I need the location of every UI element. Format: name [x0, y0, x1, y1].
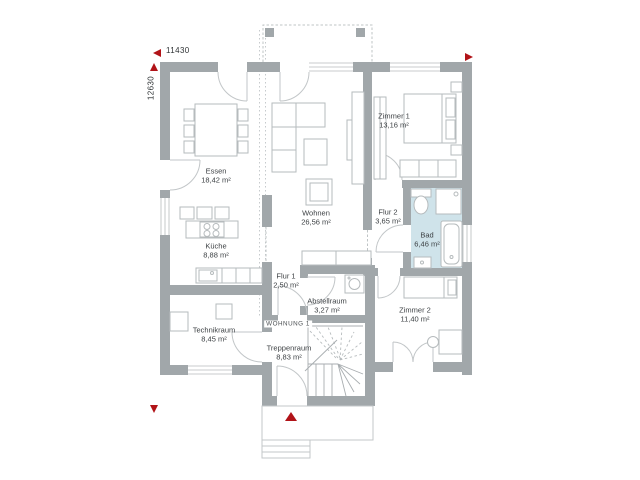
room-name: Essen	[201, 167, 231, 176]
window-left-kitchen	[160, 198, 170, 235]
apartment-unit-label: WOHNUNG 1	[264, 321, 312, 328]
room-name: Flur 2	[375, 208, 400, 217]
terrace-door-dining-left	[170, 160, 200, 190]
entrance-porch	[262, 406, 373, 458]
dimension-height-label: 12630	[147, 76, 156, 100]
door-stair-technikraum	[232, 332, 262, 362]
room-area: 3,27 m²	[307, 306, 347, 315]
room-area: 6,46 m²	[414, 240, 439, 249]
terrace-door-living-top	[280, 72, 309, 101]
armchair	[306, 179, 332, 205]
terrace-door-dining-top	[218, 72, 247, 101]
room-name: Treppenraum	[267, 344, 312, 353]
kitchen-counter-sink	[196, 268, 262, 283]
shower	[436, 189, 461, 214]
staircase	[305, 326, 363, 396]
window-bottom-technik	[188, 365, 232, 375]
dining-table	[184, 104, 248, 156]
door-flur2-zimmer2	[378, 276, 400, 298]
balcony-overhang-outline	[263, 25, 372, 62]
dim-arrow-left-icon	[153, 49, 161, 57]
room-area: 18,42 m²	[201, 176, 231, 185]
room-name: Technikraum	[193, 326, 236, 335]
room-name: Zimmer 2	[399, 306, 431, 315]
window-top-living	[309, 62, 353, 72]
window-right-bath	[462, 225, 472, 262]
room-area: 3,65 m²	[375, 217, 400, 226]
bath-sink	[414, 257, 431, 268]
coffee-table	[304, 139, 327, 165]
dresser-zimmer1	[400, 160, 456, 177]
kitchen-cabinets	[180, 207, 238, 238]
room-name: Flur 1	[273, 272, 298, 281]
room-label-bad: Bad 6,46 m²	[414, 231, 439, 250]
dim-arrow-right-icon	[465, 53, 473, 61]
french-doors-zimmer2	[393, 342, 433, 362]
floorplan-page: 11430 12630 Essen 18,42 m² Küche 8,88 m²…	[0, 0, 640, 480]
dim-arrow-up-icon	[150, 63, 158, 71]
room-area: 8,83 m²	[267, 353, 312, 362]
room-label-treppenraum: Treppenraum 8,83 m²	[267, 344, 312, 363]
room-area: 13,16 m²	[378, 121, 410, 130]
floorplan-canvas	[0, 0, 640, 480]
room-label-technikraum: Technikraum 8,45 m²	[193, 326, 236, 345]
room-label-essen: Essen 18,42 m²	[201, 167, 231, 186]
room-label-wohnen: Wohnen 26,56 m²	[301, 209, 331, 228]
room-area: 8,88 m²	[203, 251, 228, 260]
room-name: Bad	[414, 231, 439, 240]
room-name: Küche	[203, 242, 228, 251]
room-label-flur1: Flur 1 2,50 m²	[273, 272, 298, 291]
entrance-marker-icon	[285, 412, 297, 421]
bathtub	[441, 221, 462, 267]
room-label-flur2: Flur 2 3,65 m²	[375, 208, 400, 227]
room-name: Abstellraum	[307, 297, 347, 306]
dimension-width-label: 11430	[166, 46, 190, 55]
bed-zimmer1	[404, 82, 462, 155]
room-area: 8,45 m²	[193, 335, 236, 344]
room-label-zimmer2: Zimmer 2 11,40 m²	[399, 306, 431, 325]
house-entrance-door	[277, 366, 307, 396]
bed-zimmer2	[404, 277, 457, 298]
room-label-zimmer1: Zimmer 1 13,16 m²	[378, 112, 410, 131]
room-area: 11,40 m²	[399, 315, 431, 324]
room-label-kueche: Küche 8,88 m²	[203, 242, 228, 261]
door-flur2-bad	[376, 225, 403, 252]
room-area: 2,50 m²	[273, 281, 298, 290]
living-bench	[302, 251, 371, 265]
room-name: Zimmer 1	[378, 112, 410, 121]
window-top-bedroom1	[390, 62, 440, 72]
tv-sideboard	[347, 92, 364, 184]
room-area: 26,56 m²	[301, 218, 331, 227]
washing-machine	[345, 275, 364, 293]
room-label-abstellraum: Abstellraum 3,27 m²	[307, 297, 347, 316]
room-name: Wohnen	[301, 209, 331, 218]
wardrobe-zimmer1	[374, 97, 386, 179]
dim-arrow-down-icon	[150, 405, 158, 413]
